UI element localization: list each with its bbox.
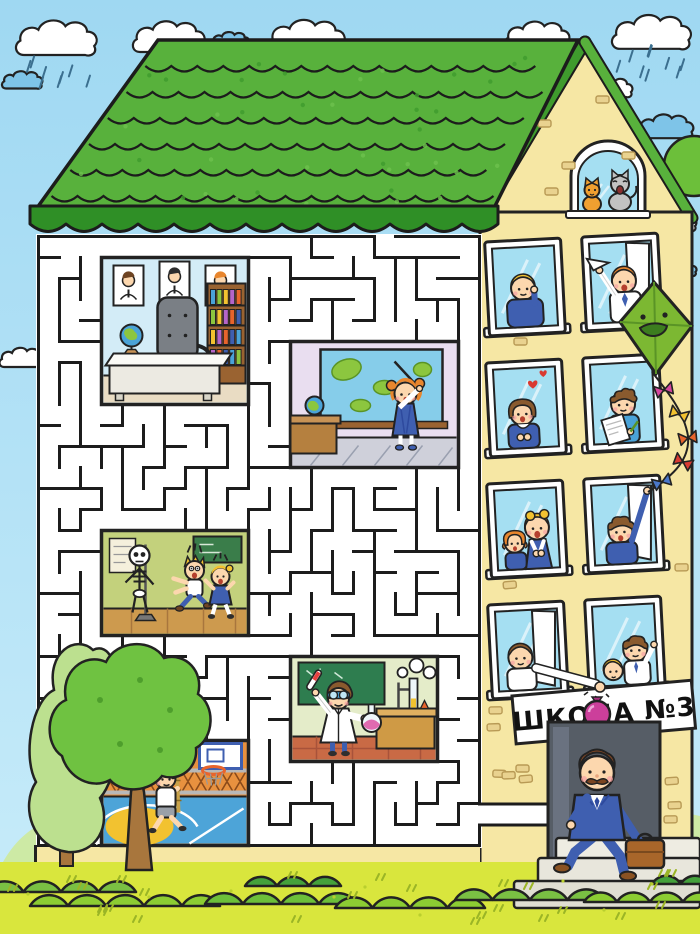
corridor-exit (478, 804, 554, 825)
window-r1-left (480, 238, 571, 337)
room-anatomy-class (102, 531, 249, 636)
room-geography-class (291, 342, 459, 468)
office-desk (106, 354, 232, 401)
room-chemistry-lab (291, 657, 438, 762)
room-principal-office (102, 258, 249, 405)
window-r3-left (482, 480, 573, 579)
window-r2-left (481, 359, 572, 458)
attic-window (566, 141, 650, 218)
cat-orange (583, 178, 601, 212)
illustration-school-maze: ШКОЛА №3 (0, 0, 700, 934)
bush (30, 895, 220, 906)
bush (245, 877, 341, 886)
window-r4-left (483, 601, 574, 700)
